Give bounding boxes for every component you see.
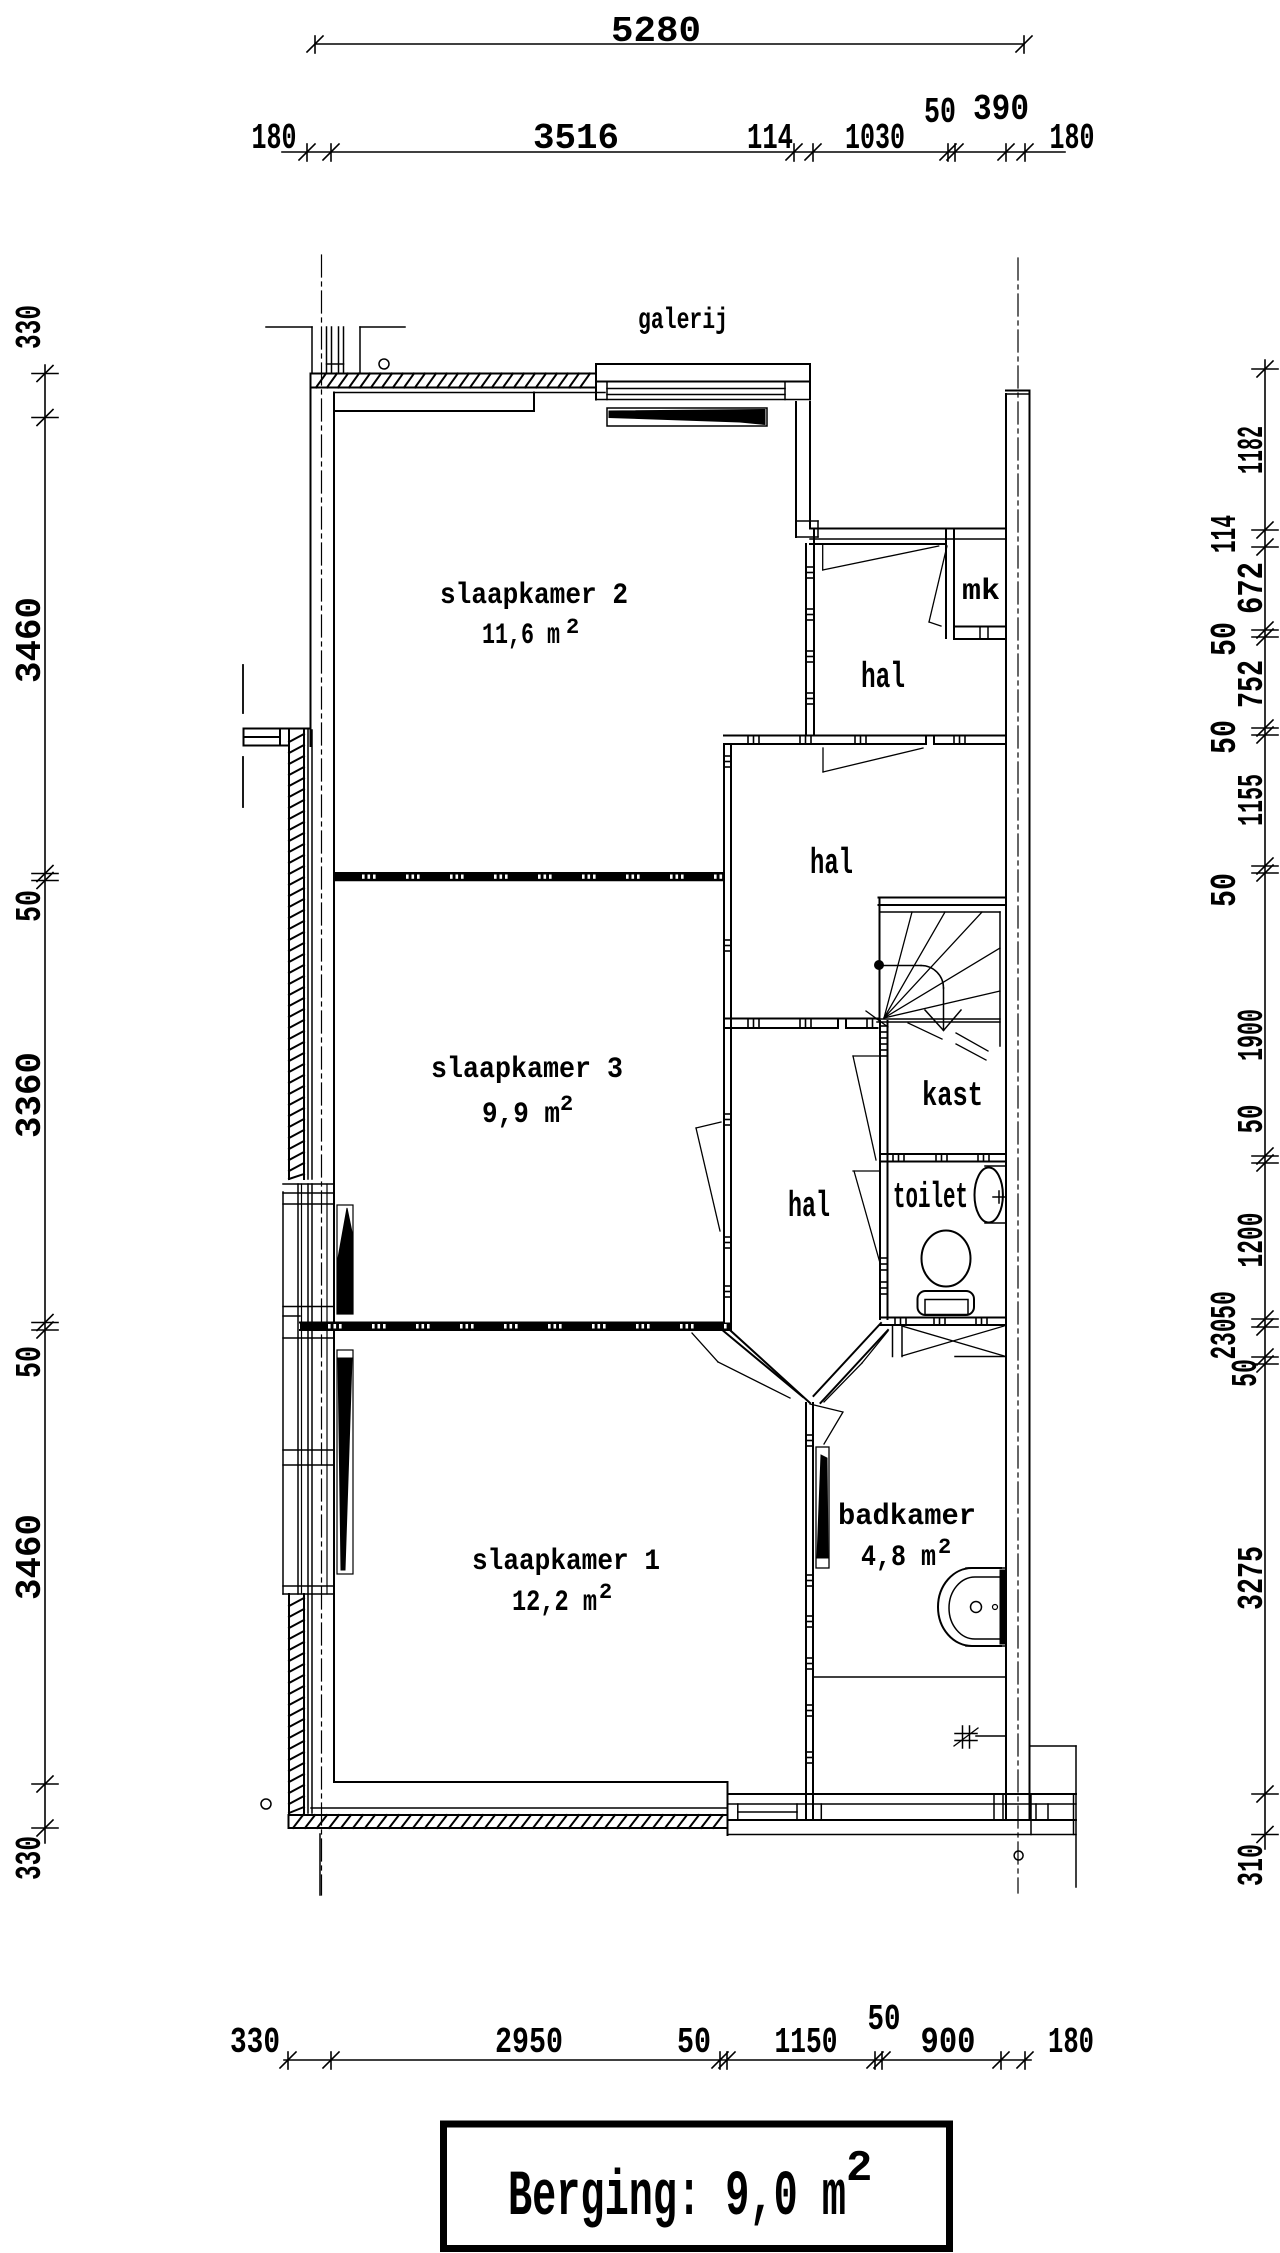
svg-text:galerij: galerij [638, 304, 728, 338]
svg-text:slaapkamer 2: slaapkamer 2 [440, 579, 628, 613]
svg-text:330: 330 [10, 1836, 51, 1880]
svg-text:2: 2 [599, 1580, 612, 1605]
svg-text:1030: 1030 [845, 118, 905, 159]
svg-text:180: 180 [1050, 118, 1095, 159]
svg-text:180: 180 [252, 118, 297, 159]
svg-text:114: 114 [1205, 515, 1246, 553]
svg-text:752: 752 [1232, 660, 1273, 708]
svg-text:50: 50 [1205, 622, 1246, 656]
svg-text:3275: 3275 [1232, 1546, 1273, 1610]
svg-text:50: 50 [1205, 720, 1246, 754]
svg-text:9,9 m: 9,9 m [482, 1098, 560, 1132]
svg-text:114: 114 [747, 118, 793, 159]
svg-text:2: 2 [566, 615, 579, 640]
svg-text:slaapkamer 3: slaapkamer 3 [431, 1053, 623, 1087]
svg-text:kast: kast [922, 1078, 983, 1116]
svg-text:12,2 m: 12,2 m [512, 1586, 597, 1620]
svg-text:50: 50 [1205, 873, 1246, 907]
svg-text:50: 50 [868, 1999, 901, 2040]
svg-text:1155: 1155 [1232, 774, 1273, 826]
svg-text:900: 900 [921, 2022, 976, 2063]
svg-text:11,6 m: 11,6 m [482, 619, 560, 653]
svg-text:Berging: 9,0 m: Berging: 9,0 m [508, 2162, 846, 2234]
svg-text:50: 50 [1226, 1359, 1267, 1387]
svg-text:mk: mk [962, 575, 1000, 609]
svg-text:390: 390 [973, 89, 1029, 130]
svg-text:3460: 3460 [10, 597, 51, 683]
svg-text:2: 2 [560, 1092, 573, 1117]
svg-text:1150: 1150 [775, 2022, 838, 2063]
svg-text:toilet: toilet [893, 1177, 968, 1218]
svg-text:badkamer: badkamer [838, 1500, 976, 1534]
svg-text:330: 330 [10, 305, 51, 349]
svg-text:1900: 1900 [1232, 1009, 1273, 1061]
svg-text:50: 50 [924, 92, 956, 133]
svg-text:hal: hal [788, 1186, 830, 1227]
svg-text:50: 50 [1205, 1291, 1246, 1319]
svg-text:hal: hal [861, 657, 905, 698]
svg-text:2: 2 [846, 2144, 872, 2194]
svg-text:180: 180 [1048, 2022, 1094, 2063]
svg-text:50: 50 [677, 2022, 711, 2063]
svg-text:230: 230 [1205, 1319, 1246, 1360]
svg-text:2950: 2950 [495, 2022, 563, 2063]
svg-text:330: 330 [230, 2022, 280, 2063]
svg-text:2: 2 [938, 1535, 951, 1560]
svg-text:3516: 3516 [533, 118, 619, 159]
svg-text:hal: hal [810, 843, 853, 884]
svg-text:672: 672 [1232, 562, 1273, 614]
svg-text:1200: 1200 [1232, 1213, 1273, 1268]
svg-text:50: 50 [10, 890, 51, 922]
svg-text:310: 310 [1232, 1844, 1273, 1886]
svg-text:1182: 1182 [1232, 426, 1273, 474]
svg-text:50: 50 [10, 1346, 51, 1378]
svg-text:50: 50 [1232, 1105, 1273, 1134]
svg-text:5280: 5280 [611, 11, 701, 52]
svg-text:4,8 m: 4,8 m [861, 1541, 936, 1575]
svg-text:slaapkamer 1: slaapkamer 1 [472, 1545, 660, 1579]
svg-text:3360: 3360 [10, 1052, 51, 1138]
svg-text:3460: 3460 [10, 1514, 51, 1600]
